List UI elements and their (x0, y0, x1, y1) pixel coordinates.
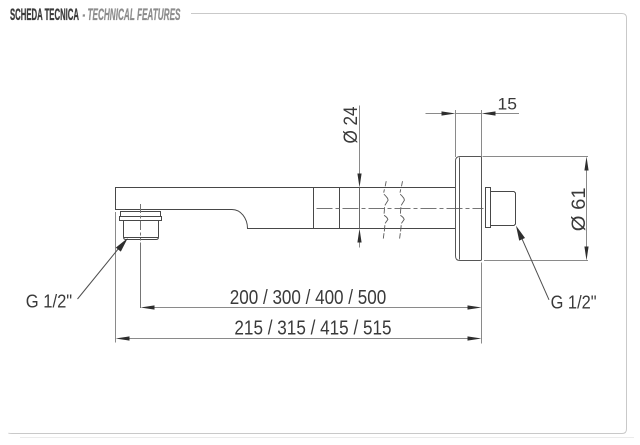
svg-text:Ø 24: Ø 24 (340, 106, 362, 143)
svg-text:G 1/2": G 1/2" (551, 293, 597, 313)
svg-text:15: 15 (498, 94, 518, 113)
svg-text:- TECHNICAL FEATURES: - TECHNICAL FEATURES (83, 6, 181, 24)
svg-text:SCHEDA TECNICA: SCHEDA TECNICA (10, 6, 79, 24)
svg-text:200 / 300 / 400 / 500: 200 / 300 / 400 / 500 (230, 287, 386, 309)
svg-text:215 / 315 / 415 / 515: 215 / 315 / 415 / 515 (234, 317, 391, 339)
svg-text:Ø 61: Ø 61 (568, 187, 590, 231)
svg-text:G 1/2": G 1/2" (26, 292, 72, 312)
